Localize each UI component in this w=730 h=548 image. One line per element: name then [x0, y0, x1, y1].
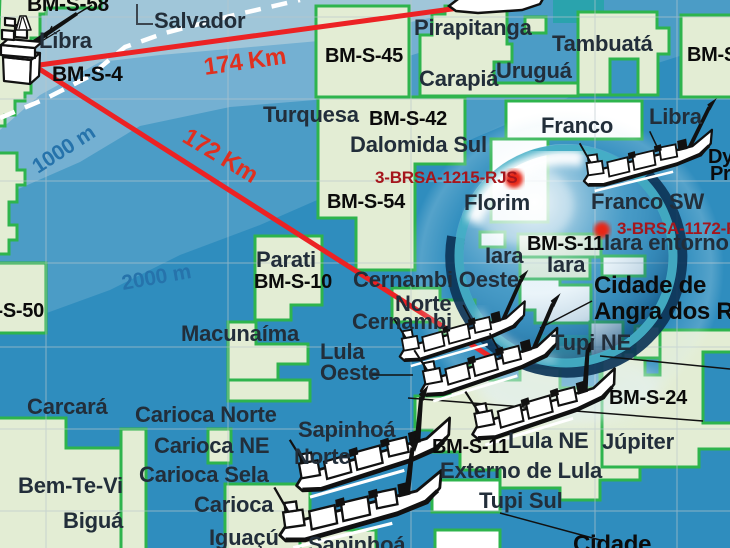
svg-text:BM-S-45: BM-S-45: [325, 45, 403, 67]
svg-text:BM-S-10: BM-S-10: [254, 271, 332, 293]
svg-text:Carioca NE: Carioca NE: [154, 433, 269, 458]
svg-text:Iara: Iara: [547, 252, 586, 277]
svg-text:BM-S-58: BM-S-58: [27, 0, 110, 16]
svg-text:3-BRSA-1215-RJS: 3-BRSA-1215-RJS: [375, 168, 518, 187]
svg-text:Carcará: Carcará: [27, 394, 109, 419]
svg-text:Tupi NE: Tupi NE: [551, 330, 631, 355]
svg-text:Bem-Te-Vi: Bem-Te-Vi: [18, 473, 123, 498]
svg-text:Dalomida Sul: Dalomida Sul: [350, 132, 487, 157]
svg-text:Júpiter: Júpiter: [602, 429, 675, 454]
svg-text:Pr: Pr: [710, 163, 730, 185]
svg-text:BM-S-11: BM-S-11: [432, 436, 509, 458]
svg-text:Carioca Norte: Carioca Norte: [135, 402, 277, 427]
svg-text:Cidade de: Cidade de: [594, 272, 706, 299]
svg-text:Cidade: Cidade: [573, 531, 651, 548]
svg-text:Tambuatá: Tambuatá: [552, 31, 654, 56]
svg-text:Tupi Sul: Tupi Sul: [479, 488, 563, 513]
svg-text:Carioca: Carioca: [194, 492, 274, 517]
svg-text:Franco: Franco: [541, 113, 613, 138]
svg-text:Cernambi Oeste: Cernambi Oeste: [353, 267, 519, 292]
svg-text:Externo de Lula: Externo de Lula: [440, 458, 603, 483]
svg-text:Angra dos R: Angra dos R: [594, 298, 730, 325]
svg-text:Salvador: Salvador: [154, 8, 246, 33]
svg-text:BM-S-50: BM-S-50: [0, 300, 44, 322]
svg-text:Carapiá: Carapiá: [419, 66, 499, 91]
svg-text:Uruguá: Uruguá: [496, 58, 573, 83]
svg-text:BM-S-4: BM-S-4: [52, 63, 123, 86]
svg-text:Iara entorno: Iara entorno: [604, 230, 729, 255]
svg-text:Sapinhoá: Sapinhoá: [298, 417, 396, 442]
svg-text:BM-S-24: BM-S-24: [609, 387, 688, 409]
svg-text:Sapinhoá: Sapinhoá: [308, 532, 406, 548]
svg-text:Oeste: Oeste: [320, 360, 380, 385]
svg-text:BM-S-52: BM-S-52: [687, 44, 730, 66]
svg-text:Lula NE: Lula NE: [508, 428, 589, 453]
svg-text:BM-S-54: BM-S-54: [327, 191, 406, 213]
svg-text:BM-S-42: BM-S-42: [369, 108, 447, 130]
svg-text:Biguá: Biguá: [63, 508, 124, 533]
svg-text:Turquesa: Turquesa: [263, 102, 360, 127]
svg-text:Pirapitanga: Pirapitanga: [414, 15, 533, 40]
svg-text:Iara: Iara: [485, 243, 524, 268]
svg-text:Franco SW: Franco SW: [591, 189, 705, 214]
svg-text:Florim: Florim: [464, 190, 530, 215]
svg-text:Libra: Libra: [649, 104, 703, 129]
svg-text:Norte: Norte: [294, 444, 350, 469]
svg-text:Macunaíma: Macunaíma: [181, 321, 300, 346]
svg-text:Iguaçú: Iguaçú: [209, 525, 279, 548]
svg-text:Carioca Sela: Carioca Sela: [139, 462, 270, 487]
svg-text:Libra: Libra: [39, 28, 93, 53]
svg-text:Parati: Parati: [256, 247, 316, 272]
svg-text:Cernambi: Cernambi: [352, 309, 452, 334]
